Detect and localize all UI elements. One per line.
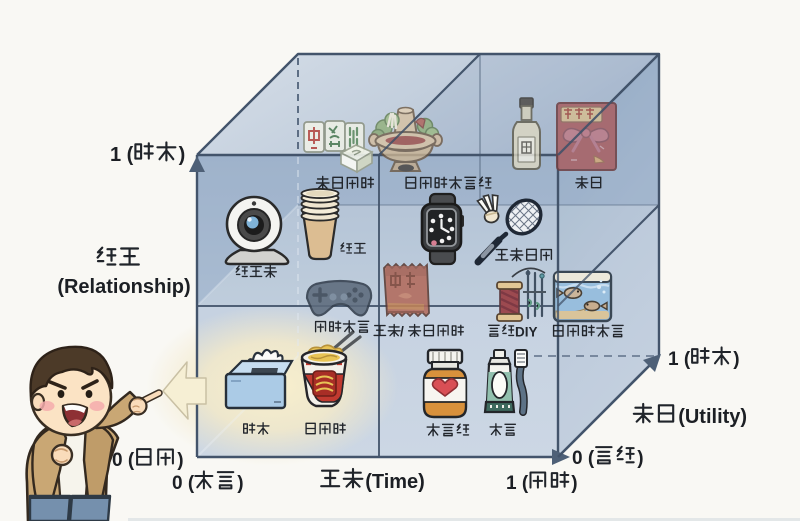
svg-text:(Utility): (Utility): [678, 406, 747, 428]
svg-text:): ): [177, 450, 183, 471]
svg-text:0 (: 0 (: [172, 473, 195, 494]
svg-text:): ): [179, 144, 186, 166]
svg-text:1 (: 1 (: [668, 349, 691, 370]
svg-text:1 (: 1 (: [110, 144, 134, 166]
svg-text:): ): [571, 473, 577, 494]
svg-text:): ): [637, 448, 643, 469]
svg-text:/: /: [400, 323, 404, 339]
svg-text:DIY: DIY: [515, 325, 538, 340]
svg-text:0 (: 0 (: [112, 450, 135, 471]
svg-text:1 (: 1 (: [506, 473, 529, 494]
svg-text:(Relationship): (Relationship): [57, 276, 190, 298]
svg-text:0 (: 0 (: [572, 448, 595, 469]
svg-text:): ): [237, 473, 243, 494]
svg-text:(Time): (Time): [365, 471, 425, 493]
svg-text:): ): [733, 349, 739, 370]
